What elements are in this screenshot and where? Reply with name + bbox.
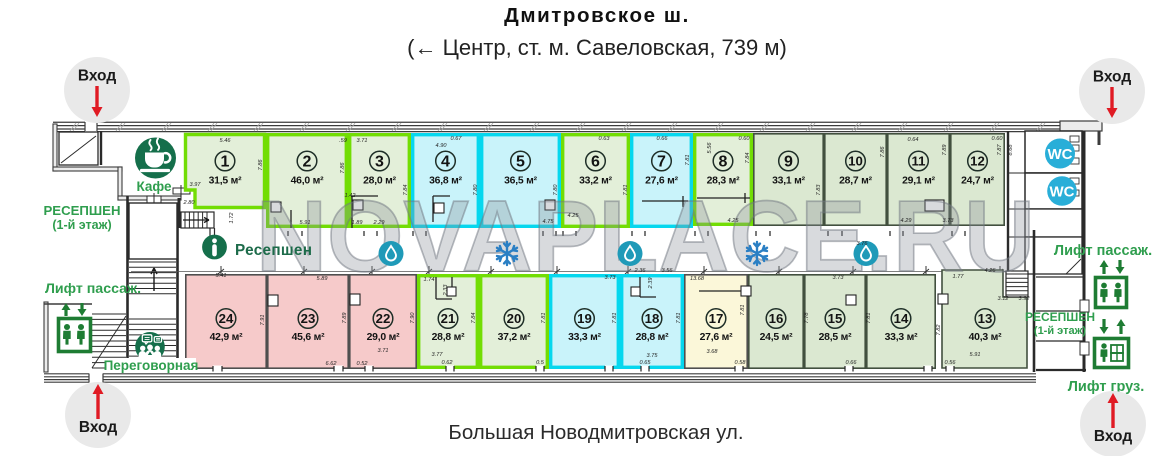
svg-text:20: 20 — [507, 311, 522, 326]
svg-text:Вход: Вход — [79, 419, 117, 436]
svg-text:(1-й этаж): (1-й этаж) — [1034, 325, 1086, 337]
svg-text:Вход: Вход — [1093, 69, 1131, 86]
svg-text:NOVAPLACE.RU: NOVAPLACE.RU — [256, 181, 1035, 293]
svg-text:WC: WC — [1048, 146, 1073, 163]
svg-text:7: 7 — [657, 154, 666, 171]
svg-text:7.81: 7.81 — [676, 313, 682, 324]
svg-text:15: 15 — [828, 311, 843, 326]
svg-text:8.68: 8.68 — [1008, 144, 1014, 156]
svg-text:0.66: 0.66 — [846, 360, 858, 366]
svg-text:3: 3 — [375, 154, 384, 171]
svg-text:45,6 м²: 45,6 м² — [292, 332, 326, 343]
svg-text:5.91: 5.91 — [970, 352, 981, 358]
svg-text:3.71: 3.71 — [357, 138, 368, 144]
svg-text:5.91: 5.91 — [300, 220, 311, 226]
svg-text:24: 24 — [219, 311, 234, 326]
svg-text:Лифт пассаж.: Лифт пассаж. — [1054, 243, 1152, 259]
svg-text:24,5 м²: 24,5 м² — [760, 332, 794, 343]
svg-text:8: 8 — [719, 154, 728, 171]
svg-text:0.64: 0.64 — [908, 137, 919, 143]
svg-text:7.84: 7.84 — [471, 313, 477, 324]
svg-text:16: 16 — [769, 311, 784, 326]
svg-text:0.52: 0.52 — [357, 361, 369, 367]
svg-text:21: 21 — [441, 311, 456, 326]
svg-text:Лифт пассаж.: Лифт пассаж. — [45, 281, 141, 297]
svg-text:5.89: 5.89 — [317, 276, 328, 282]
svg-text:3.68: 3.68 — [707, 349, 719, 355]
svg-text:7.81: 7.81 — [612, 313, 618, 324]
svg-text:Переговорная: Переговорная — [104, 358, 199, 373]
svg-text:0.60: 0.60 — [739, 136, 751, 142]
svg-text:1.77: 1.77 — [953, 274, 965, 280]
svg-text:0.60: 0.60 — [992, 136, 1004, 142]
svg-text:28,5 м²: 28,5 м² — [819, 332, 853, 343]
svg-text:12: 12 — [970, 154, 985, 169]
svg-text:6: 6 — [591, 154, 600, 171]
svg-text:7.90: 7.90 — [410, 312, 416, 324]
svg-text:27,6 м²: 27,6 м² — [700, 332, 734, 343]
svg-text:2.36: 2.36 — [634, 268, 647, 274]
svg-text:1.42: 1.42 — [345, 193, 357, 199]
svg-text:3.76: 3.76 — [857, 241, 869, 247]
svg-text:3.97: 3.97 — [190, 182, 202, 188]
svg-text:0.67: 0.67 — [451, 136, 463, 142]
svg-text:WC: WC — [1050, 184, 1075, 201]
svg-text:Вход: Вход — [1094, 428, 1132, 445]
svg-text:6.62: 6.62 — [326, 361, 338, 367]
svg-text:18: 18 — [645, 311, 660, 326]
svg-text:9: 9 — [784, 154, 793, 171]
svg-text:7.81: 7.81 — [685, 155, 691, 166]
svg-text:7.84: 7.84 — [403, 185, 409, 196]
svg-text:(1-й этаж): (1-й этаж) — [52, 218, 111, 232]
svg-text:40,3 м²: 40,3 м² — [969, 332, 1003, 343]
svg-text:2.29: 2.29 — [373, 220, 385, 226]
svg-text:1: 1 — [221, 154, 230, 171]
svg-text:4.26: 4.26 — [985, 268, 997, 274]
svg-text:РЕСЕПШЕН: РЕСЕПШЕН — [44, 203, 121, 218]
svg-text:0.56: 0.56 — [945, 360, 957, 366]
svg-text:7.81: 7.81 — [623, 185, 629, 196]
svg-text:0.66: 0.66 — [657, 136, 669, 142]
svg-text:5.41: 5.41 — [216, 273, 227, 279]
svg-text:0.63: 0.63 — [599, 136, 611, 142]
svg-text:0.65: 0.65 — [640, 360, 652, 366]
svg-text:5: 5 — [516, 154, 525, 171]
svg-text:Дмитровское ш.: Дмитровское ш. — [504, 4, 690, 27]
svg-text:2.33: 2.33 — [443, 284, 449, 297]
svg-text:РЕСЕПШЕН: РЕСЕПШЕН — [1025, 310, 1095, 324]
svg-text:3.92: 3.92 — [1019, 296, 1031, 302]
svg-text:2.39: 2.39 — [648, 278, 654, 290]
svg-text:13.68: 13.68 — [690, 276, 705, 282]
svg-text:Большая Новодмитровская ул.: Большая Новодмитровская ул. — [448, 421, 743, 444]
svg-text:17: 17 — [709, 311, 724, 326]
svg-text:4.90: 4.90 — [436, 143, 448, 149]
svg-text:7.86: 7.86 — [258, 159, 264, 171]
svg-text:4.75: 4.75 — [543, 219, 555, 225]
svg-text:29,0 м²: 29,0 м² — [367, 332, 401, 343]
svg-text:1.89: 1.89 — [352, 220, 363, 226]
svg-text:7.81: 7.81 — [866, 313, 872, 324]
svg-text:7.80: 7.80 — [553, 184, 559, 196]
svg-text:2.80: 2.80 — [183, 200, 196, 206]
svg-text:4.25: 4.25 — [568, 213, 580, 219]
svg-text:7.86: 7.86 — [340, 162, 346, 174]
svg-text:31,5 м²: 31,5 м² — [209, 176, 243, 187]
svg-text:0.5: 0.5 — [536, 360, 545, 366]
svg-text:7.86: 7.86 — [880, 146, 886, 158]
svg-text:7.84: 7.84 — [745, 153, 751, 164]
svg-text:3.77: 3.77 — [432, 352, 444, 358]
svg-text:7.82: 7.82 — [936, 324, 942, 336]
svg-text:7.87: 7.87 — [997, 144, 1003, 156]
svg-text:4.29: 4.29 — [901, 218, 912, 224]
svg-text:37,2 м²: 37,2 м² — [498, 332, 532, 343]
svg-text:.59: .59 — [339, 138, 347, 144]
svg-text:Ресепшен: Ресепшен — [235, 242, 312, 259]
svg-text:1.72: 1.72 — [229, 212, 235, 224]
svg-text:0.62: 0.62 — [442, 360, 454, 366]
svg-text:22: 22 — [376, 311, 391, 326]
svg-text:7.80: 7.80 — [473, 184, 479, 196]
svg-text:4: 4 — [441, 154, 450, 171]
svg-text:28,8 м²: 28,8 м² — [636, 332, 670, 343]
svg-text:3.73: 3.73 — [943, 218, 955, 224]
svg-text:7.89: 7.89 — [942, 145, 948, 156]
svg-text:4.25: 4.25 — [728, 218, 740, 224]
svg-text:7.83: 7.83 — [816, 184, 822, 196]
svg-text:13: 13 — [978, 311, 993, 326]
svg-text:7.78: 7.78 — [804, 312, 810, 324]
svg-text:7.89: 7.89 — [342, 313, 348, 324]
svg-text:19: 19 — [577, 311, 592, 326]
svg-text:7.91: 7.91 — [260, 315, 266, 326]
svg-text:1.74: 1.74 — [424, 277, 435, 283]
svg-text:2: 2 — [303, 154, 312, 171]
svg-text:5.56: 5.56 — [707, 142, 713, 154]
svg-text:3.73: 3.73 — [605, 275, 617, 281]
svg-text:5.46: 5.46 — [220, 138, 232, 144]
svg-text:33,3 м²: 33,3 м² — [568, 332, 602, 343]
svg-text:7.81: 7.81 — [740, 305, 746, 316]
svg-text:14: 14 — [894, 311, 909, 326]
svg-text:3.71: 3.71 — [378, 348, 389, 354]
svg-text:Вход: Вход — [78, 68, 116, 85]
svg-text:23: 23 — [301, 311, 316, 326]
svg-text:7.81: 7.81 — [541, 313, 547, 324]
svg-text:28,8 м²: 28,8 м² — [432, 332, 466, 343]
svg-text:11: 11 — [912, 154, 926, 169]
svg-text:3.73: 3.73 — [833, 275, 845, 281]
svg-text:42,9 м²: 42,9 м² — [210, 332, 244, 343]
svg-text:3.75: 3.75 — [647, 353, 659, 359]
svg-text:3.56: 3.56 — [662, 268, 674, 274]
svg-text:(← Центр, ст. м. Савеловская,: (← Центр, ст. м. Савеловская, 739 м) — [407, 35, 787, 60]
svg-text:Кафе: Кафе — [136, 179, 172, 194]
svg-text:10: 10 — [848, 154, 863, 169]
svg-text:0.58: 0.58 — [735, 360, 747, 366]
svg-text:3.12: 3.12 — [998, 296, 1010, 302]
svg-text:33,3 м²: 33,3 м² — [885, 332, 919, 343]
